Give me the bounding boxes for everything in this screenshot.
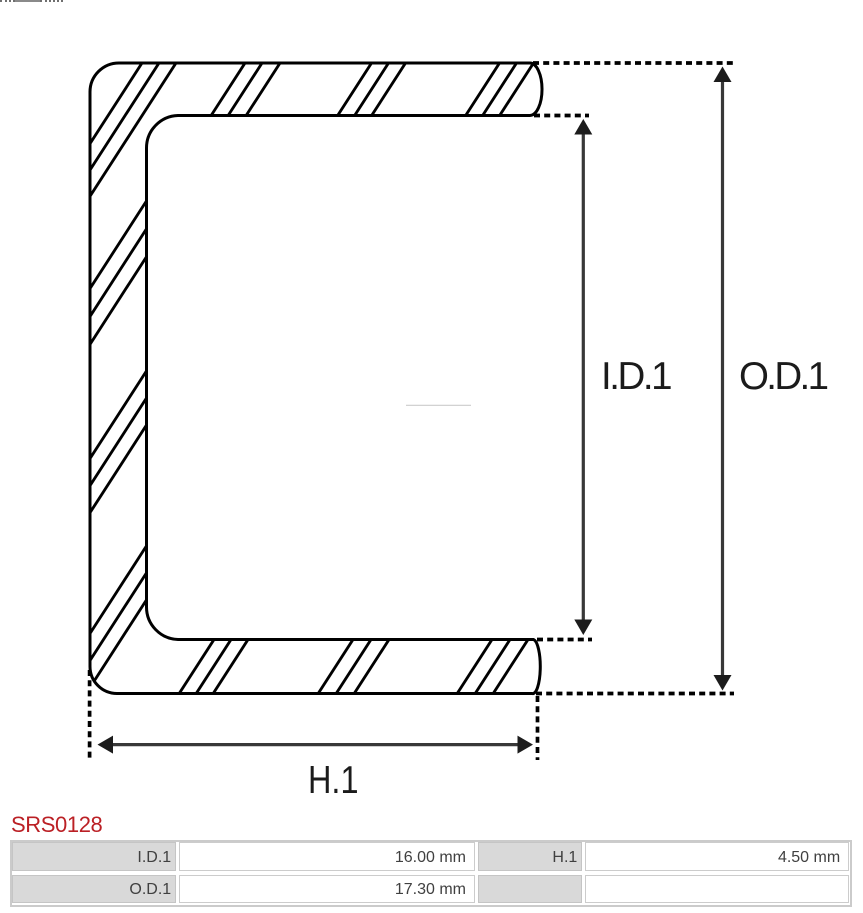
svg-text:I.D.1: I.D.1	[601, 355, 673, 398]
svg-text:H.1: H.1	[308, 759, 359, 802]
svg-text:O.D.1: O.D.1	[739, 355, 829, 398]
